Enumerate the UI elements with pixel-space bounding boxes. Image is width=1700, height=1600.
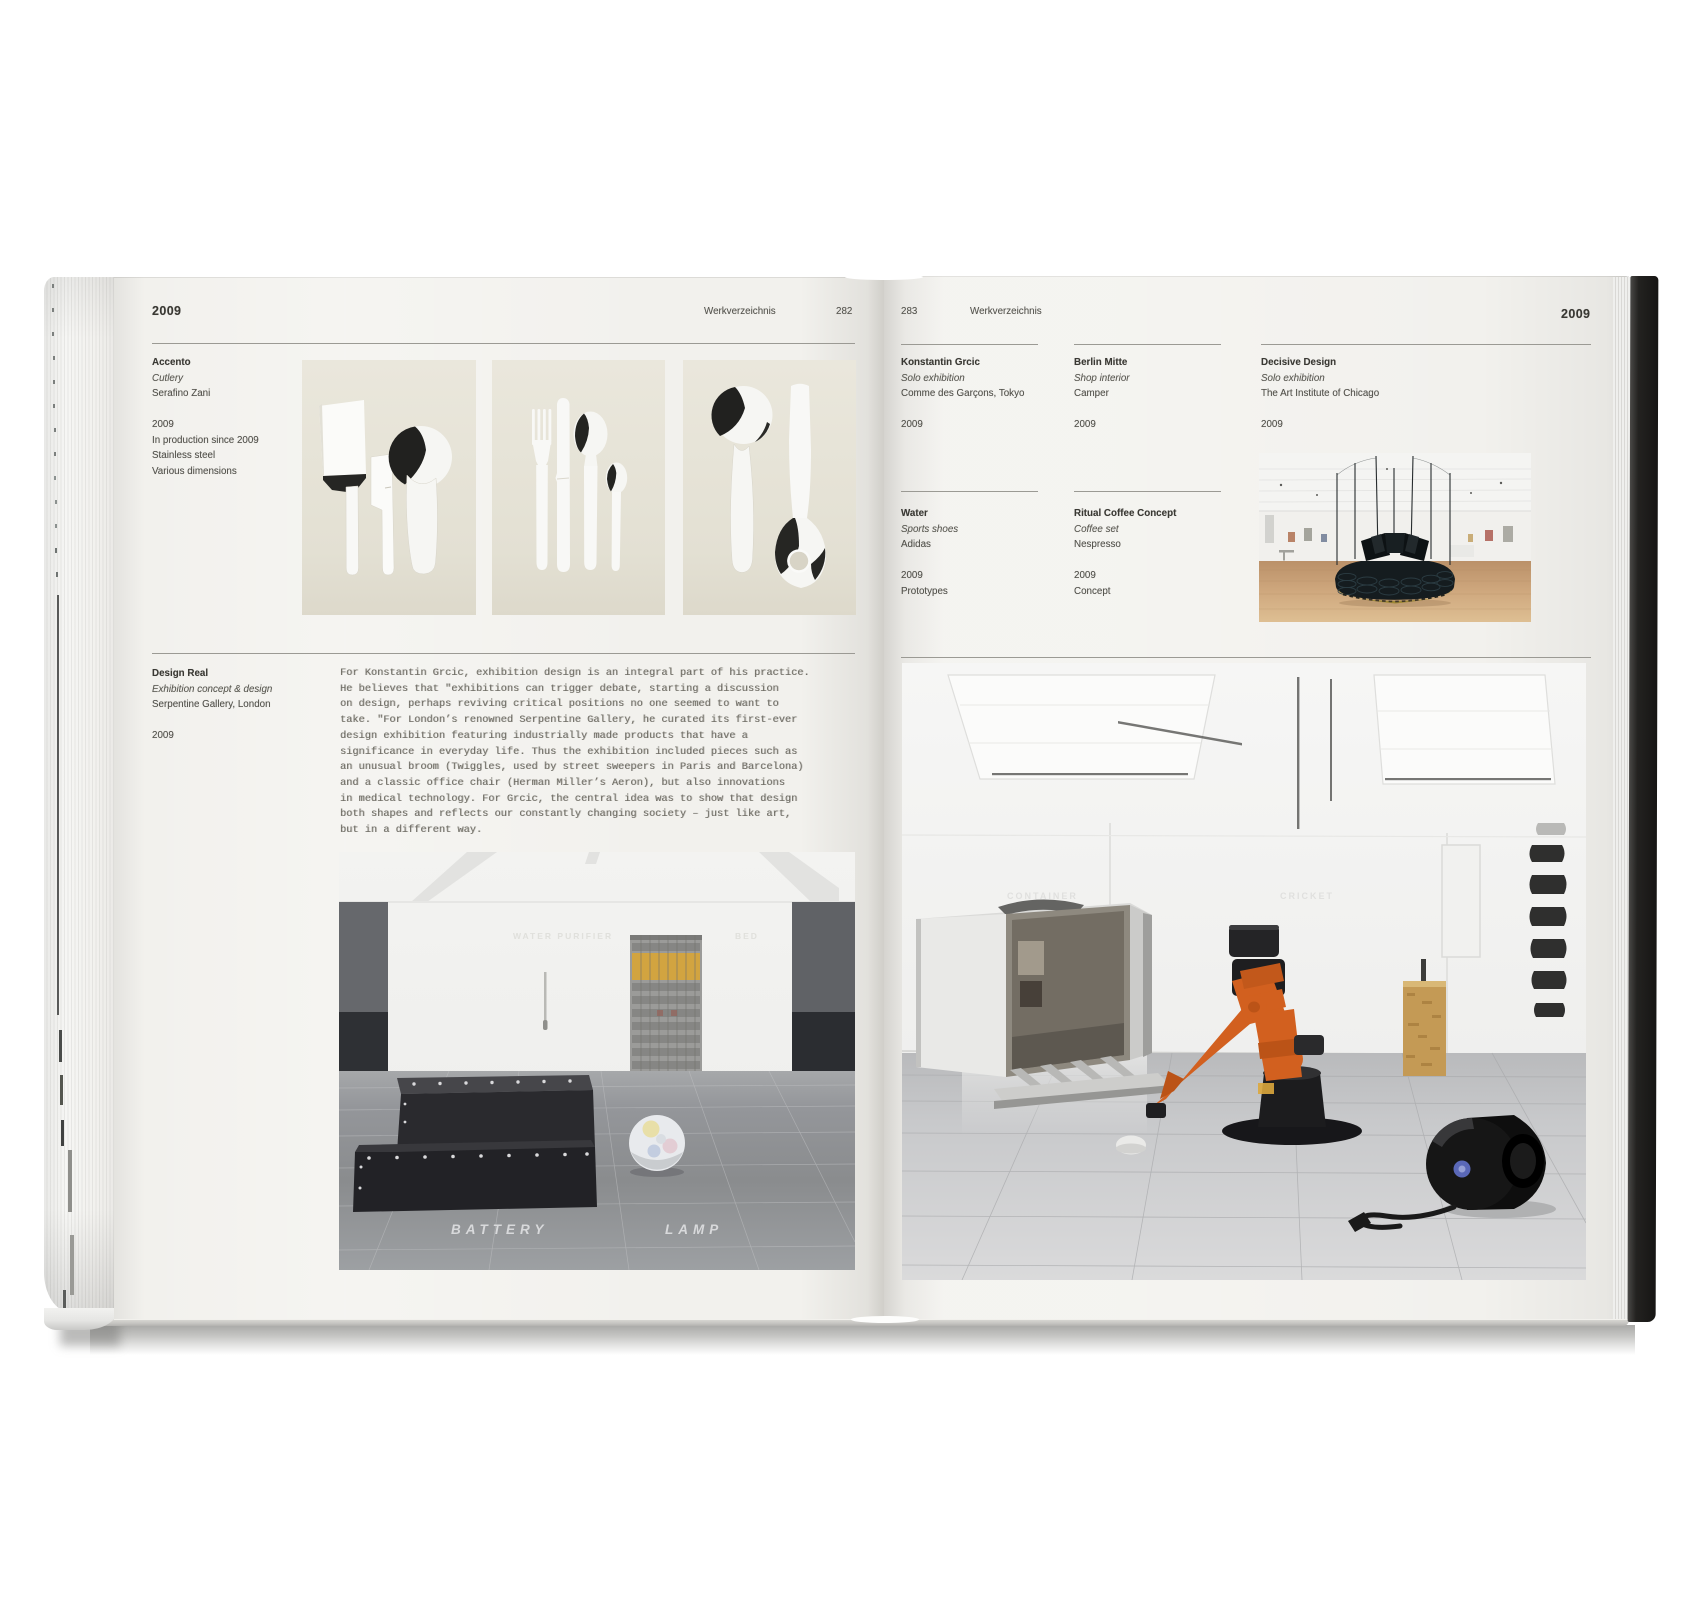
svg-text:WATER PURIFIER: WATER PURIFIER — [513, 931, 613, 941]
svg-text:BATTERY: BATTERY — [451, 1222, 549, 1237]
svg-text:BED: BED — [735, 931, 759, 941]
svg-text:CRICKET: CRICKET — [1280, 891, 1334, 901]
svg-text:LAMP: LAMP — [665, 1222, 723, 1237]
